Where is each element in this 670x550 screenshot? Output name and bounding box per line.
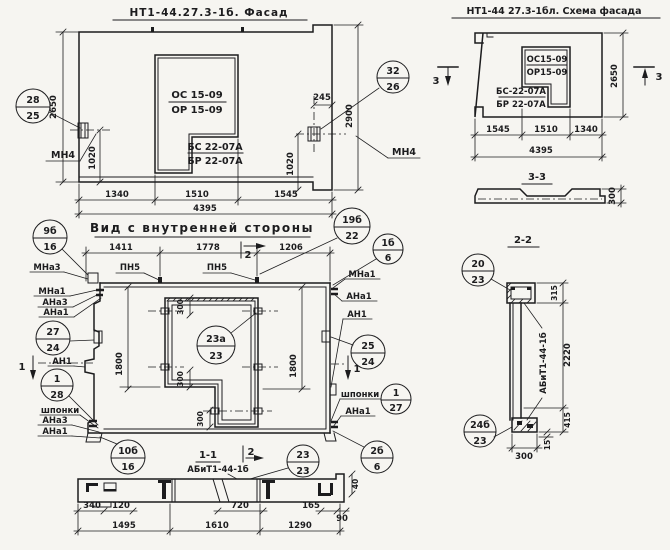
svg-text:1340: 1340 <box>574 125 598 135</box>
svg-text:1778: 1778 <box>196 243 220 253</box>
svg-text:АН1: АН1 <box>347 310 367 320</box>
inner-left-labels: МНа3 МНа1 АНа3 АНа1 АН1 шпонки АНа3 АНа1 <box>30 263 101 438</box>
svg-text:90: 90 <box>336 514 348 524</box>
scheme-sill-mark-top: БС-22-07А <box>496 87 546 97</box>
facade-sill-mark-top: БС 22-07А <box>187 142 243 153</box>
ref-bubble-1-27: 1 27 <box>381 384 411 414</box>
scheme-title: НТ1-44 27.3-1бл. Схема фасада <box>467 6 642 17</box>
svg-text:40: 40 <box>351 479 360 489</box>
svg-text:АНа3: АНа3 <box>42 298 67 308</box>
svg-text:9б: 9б <box>43 226 57 237</box>
scheme-window-mark-top: ОС15-09 <box>527 55 568 65</box>
facade-window-mark-top: ОС 15-09 <box>171 90 222 101</box>
ref-bubble-19b-22: 19б 22 <box>260 208 370 274</box>
svg-text:27: 27 <box>46 327 59 338</box>
facade-title: НТ1-44.27.3-1б. Фасад <box>129 7 288 19</box>
svg-text:24б: 24б <box>470 420 490 431</box>
svg-text:2б: 2б <box>370 446 384 457</box>
svg-text:28: 28 <box>50 390 64 401</box>
ref-bubble-2b-6: 2б 6 <box>333 431 393 473</box>
svg-text:23: 23 <box>471 275 484 286</box>
svg-text:26: 26 <box>386 82 400 93</box>
svg-text:1800: 1800 <box>289 354 299 378</box>
svg-text:16: 16 <box>43 242 57 253</box>
svg-text:1411: 1411 <box>109 243 133 253</box>
svg-text:1495: 1495 <box>112 521 136 531</box>
svg-text:1510: 1510 <box>534 125 558 135</box>
section-1-marker-right: 1 <box>331 356 361 380</box>
svg-text:АНа1: АНа1 <box>42 427 67 437</box>
ref-bubble-28-25: 28 25 <box>16 89 80 128</box>
svg-text:1: 1 <box>393 388 400 399</box>
svg-text:300: 300 <box>196 411 205 427</box>
section-3-3: 3-3 300 <box>475 172 626 207</box>
inner-view-title: Вид с внутренней стороны <box>90 221 314 235</box>
scheme-sill-mark-bottom: БР 22-07А <box>496 100 546 110</box>
scheme-window-mark-bottom: ОР15-09 <box>527 68 568 78</box>
svg-text:1: 1 <box>54 374 61 385</box>
svg-text:300: 300 <box>515 452 533 462</box>
facade-sill-mark-bottom: БР 22-07А <box>187 156 243 167</box>
svg-text:1545: 1545 <box>486 125 510 135</box>
svg-text:300: 300 <box>176 299 185 315</box>
facade-view: НТ1-44.27.3-1б. Фасад ОС 15-09 ОР 15-09 … <box>16 7 420 218</box>
ref-bubble-23-23: 23 23 <box>250 445 319 479</box>
svg-text:32: 32 <box>386 66 399 77</box>
ref-bubble-24b-23: 24б 23 <box>464 415 512 447</box>
inner-top-dimensions: 1411 1778 1206 <box>82 243 334 281</box>
section-2-marker-top: 2 <box>241 242 266 261</box>
svg-text:2220: 2220 <box>563 343 573 367</box>
svg-text:АН1: АН1 <box>52 357 72 367</box>
svg-text:28: 28 <box>26 95 40 106</box>
svg-text:415: 415 <box>563 412 572 428</box>
ref-bubble-20-23: 20 23 <box>462 254 510 290</box>
svg-text:165: 165 <box>302 501 320 511</box>
svg-text:2650: 2650 <box>610 64 620 88</box>
svg-text:19б: 19б <box>342 215 362 226</box>
section-2-2-title: 2-2 <box>514 235 532 246</box>
section-2-2-profile <box>507 283 537 432</box>
svg-text:24: 24 <box>361 357 375 368</box>
section-1-1-subtitle: АБиТ1-44-1б <box>187 464 249 475</box>
section-3-marker-left: 3 <box>433 67 458 87</box>
svg-text:15: 15 <box>543 440 552 450</box>
svg-text:АНа1: АНа1 <box>43 308 68 318</box>
section-1-1-title: 1-1 <box>199 450 217 461</box>
section-2-2: 2-2 20 23 АБиТ1-44-1б <box>462 235 573 462</box>
svg-text:27: 27 <box>389 403 402 414</box>
lifting-loop-left <box>70 123 112 138</box>
svg-text:23а: 23а <box>206 334 226 345</box>
connector-tick <box>241 27 244 32</box>
blueprint-page: НТ1-44.27.3-1б. Фасад ОС 15-09 ОР 15-09 … <box>0 0 670 550</box>
svg-text:АНа1: АНа1 <box>346 292 371 302</box>
svg-text:1290: 1290 <box>288 521 312 531</box>
svg-text:4395: 4395 <box>193 204 217 214</box>
svg-text:6: 6 <box>385 253 392 264</box>
svg-text:720: 720 <box>231 501 249 511</box>
svg-text:340: 340 <box>83 501 101 511</box>
ref-bubble-32-26: 32 26 <box>321 61 409 129</box>
svg-text:1020: 1020 <box>88 146 98 170</box>
lifting-loop-right <box>296 96 346 152</box>
svg-text:16: 16 <box>121 462 135 473</box>
top-connector-left <box>88 273 98 283</box>
anchor-label-mn4-right: МН4 <box>392 147 416 158</box>
svg-text:АНа1: АНа1 <box>345 407 370 417</box>
svg-text:1: 1 <box>19 362 26 373</box>
svg-text:1800: 1800 <box>115 352 125 376</box>
svg-text:6: 6 <box>374 462 381 473</box>
svg-text:2900: 2900 <box>345 104 355 128</box>
pn5-label-right: ПН5 <box>207 263 227 273</box>
svg-text:23: 23 <box>296 466 309 477</box>
panel-mark-vertical: АБиТ1-44-1б <box>538 332 549 394</box>
svg-text:120: 120 <box>112 501 130 511</box>
drawing-canvas: НТ1-44.27.3-1б. Фасад ОС 15-09 ОР 15-09 … <box>0 0 670 550</box>
svg-text:АНа3: АНа3 <box>42 416 67 426</box>
svg-text:МНа1: МНа1 <box>38 287 65 297</box>
svg-text:25: 25 <box>26 111 39 122</box>
section-3-marker-right: 3 <box>634 67 663 85</box>
svg-text:10б: 10б <box>118 446 138 457</box>
pn5-label-left: ПН5 <box>120 263 140 273</box>
ref-bubble-23a-23: 23а 23 <box>197 313 256 364</box>
scheme-view: НТ1-44 27.3-1бл. Схема фасада ОС15-09 ОР… <box>433 6 663 161</box>
section-2-marker-bottom: 2 <box>243 446 264 462</box>
inner-window-opening <box>148 298 278 427</box>
svg-text:300: 300 <box>608 187 618 205</box>
svg-text:23: 23 <box>209 351 222 362</box>
facade-window-mark-bottom: ОР 15-09 <box>171 105 222 116</box>
connector-tick <box>151 27 154 32</box>
svg-text:4395: 4395 <box>529 146 553 156</box>
svg-text:1б: 1б <box>381 238 395 249</box>
svg-text:2: 2 <box>248 447 255 458</box>
svg-text:23: 23 <box>473 436 486 447</box>
svg-text:1020: 1020 <box>286 152 296 176</box>
svg-text:22: 22 <box>345 231 358 242</box>
svg-text:25: 25 <box>361 341 374 352</box>
svg-text:2650: 2650 <box>49 95 59 119</box>
svg-text:шпонки: шпонки <box>341 390 379 400</box>
svg-text:1510: 1510 <box>185 190 209 200</box>
svg-text:3: 3 <box>433 76 440 87</box>
section-1-1-dimensions: 340 120 720 165 90 40 1495 1610 1290 <box>74 471 360 535</box>
svg-text:245: 245 <box>313 93 331 103</box>
svg-text:МНа3: МНа3 <box>33 263 60 273</box>
svg-text:20: 20 <box>471 259 485 270</box>
svg-text:23: 23 <box>296 450 309 461</box>
svg-text:1206: 1206 <box>279 243 303 253</box>
facade-dimensions: 2650 1020 1020 245 2900 1340 1510 1545 4… <box>49 22 363 218</box>
svg-text:2: 2 <box>245 250 252 261</box>
ref-bubble-10b-16: 10б 16 <box>100 437 145 474</box>
inner-view: Вид с внутренней стороны 1411 1778 1206 … <box>19 208 411 474</box>
svg-text:МНа1: МНа1 <box>348 270 375 280</box>
svg-text:шпонки: шпонки <box>41 406 79 416</box>
ref-bubble-27-24: 27 24 <box>36 321 94 355</box>
svg-text:1340: 1340 <box>105 190 129 200</box>
svg-text:1545: 1545 <box>274 190 298 200</box>
section-3-3-title: 3-3 <box>528 172 546 183</box>
svg-text:300: 300 <box>176 371 185 387</box>
svg-text:1: 1 <box>354 364 361 375</box>
svg-text:1610: 1610 <box>205 521 229 531</box>
svg-text:315: 315 <box>550 285 559 301</box>
svg-text:3: 3 <box>656 72 663 83</box>
svg-text:24: 24 <box>46 343 60 354</box>
